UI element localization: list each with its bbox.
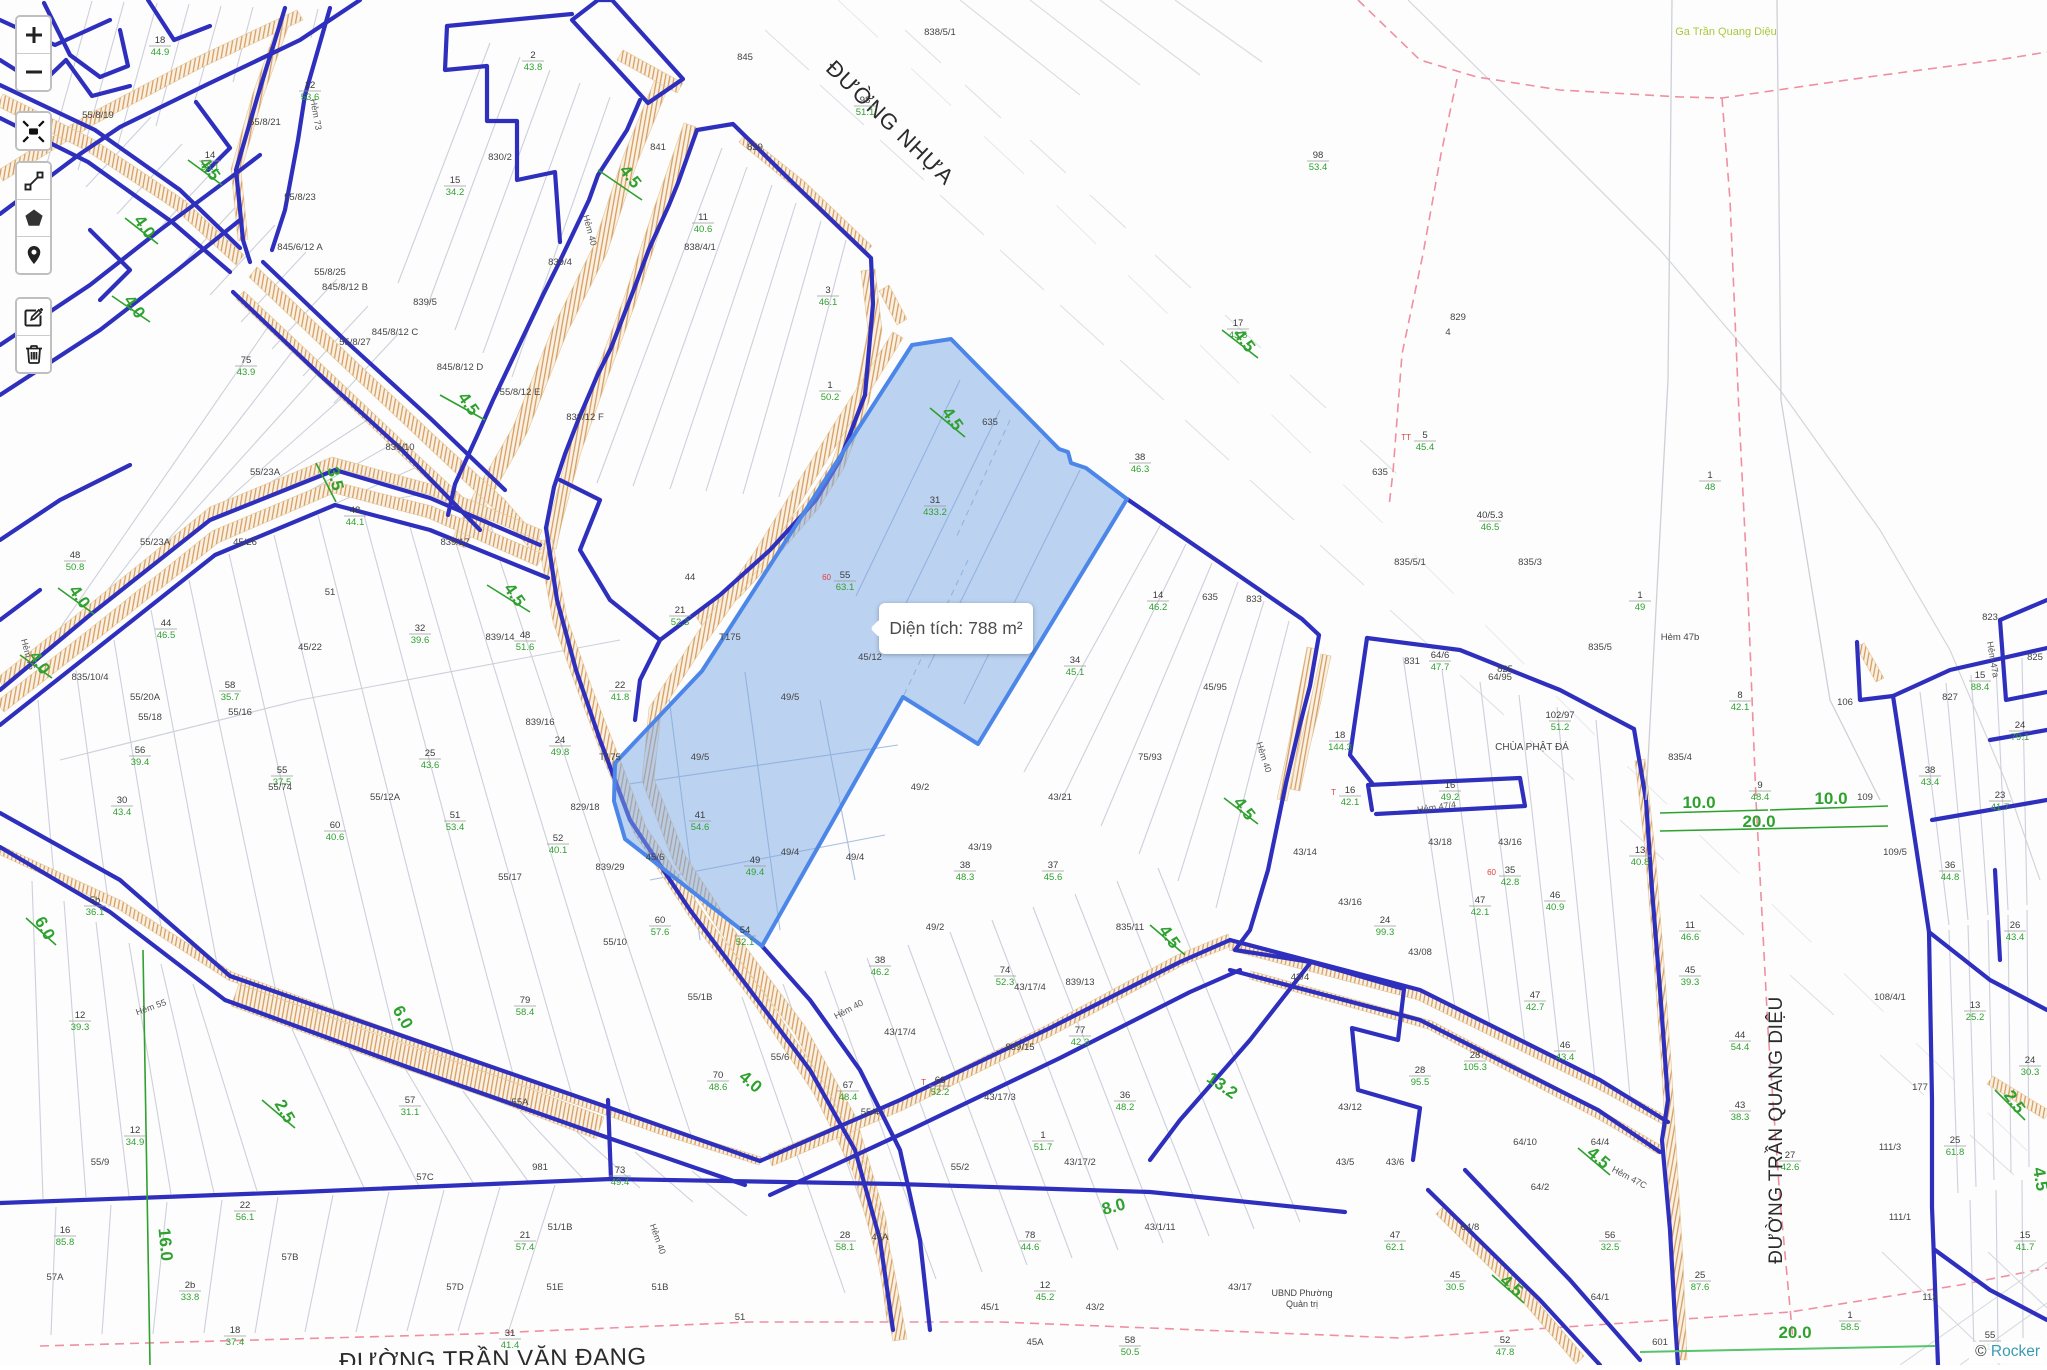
svg-text:45.6: 45.6 bbox=[1044, 872, 1063, 883]
svg-text:5: 5 bbox=[1422, 430, 1427, 441]
svg-text:11: 11 bbox=[1685, 920, 1695, 931]
svg-text:24: 24 bbox=[555, 735, 566, 746]
svg-text:47: 47 bbox=[1390, 1230, 1401, 1241]
svg-text:36: 36 bbox=[1120, 1090, 1131, 1101]
svg-text:64/2: 64/2 bbox=[1531, 1182, 1550, 1193]
svg-text:111/3: 111/3 bbox=[1879, 1142, 1901, 1153]
svg-text:1: 1 bbox=[1637, 590, 1642, 601]
svg-text:26: 26 bbox=[2010, 920, 2021, 931]
svg-text:109: 109 bbox=[1857, 792, 1873, 803]
svg-text:43.4: 43.4 bbox=[1921, 777, 1940, 788]
svg-text:43/17/2: 43/17/2 bbox=[1064, 1157, 1096, 1168]
svg-text:829/18: 829/18 bbox=[570, 802, 599, 813]
svg-text:UBND Phường: UBND Phường bbox=[1272, 1288, 1333, 1298]
svg-text:835/4: 835/4 bbox=[1668, 752, 1692, 763]
svg-text:43/18: 43/18 bbox=[1428, 837, 1452, 848]
svg-text:55/20A: 55/20A bbox=[130, 692, 161, 703]
svg-text:T: T bbox=[1331, 788, 1336, 797]
svg-text:45A: 45A bbox=[1027, 1337, 1045, 1348]
svg-text:839/16: 839/16 bbox=[525, 717, 554, 728]
svg-text:56.1: 56.1 bbox=[236, 1212, 255, 1223]
svg-text:64/4: 64/4 bbox=[1591, 1137, 1610, 1148]
svg-text:40.6: 40.6 bbox=[326, 832, 345, 843]
svg-text:77: 77 bbox=[1075, 1025, 1086, 1036]
svg-text:43.4: 43.4 bbox=[1556, 1052, 1575, 1063]
svg-text:2: 2 bbox=[530, 50, 535, 61]
svg-text:74: 74 bbox=[1000, 965, 1011, 976]
svg-text:58: 58 bbox=[1125, 1335, 1136, 1346]
svg-text:42.7: 42.7 bbox=[1526, 1002, 1545, 1013]
svg-text:43/12: 43/12 bbox=[1338, 1102, 1362, 1113]
svg-text:TT: TT bbox=[1401, 433, 1411, 442]
svg-text:Ga Trần Quang Diệu: Ga Trần Quang Diệu bbox=[1675, 26, 1777, 38]
svg-text:3: 3 bbox=[825, 285, 830, 296]
svg-text:42.3: 42.3 bbox=[1071, 1037, 1090, 1048]
svg-text:51.7: 51.7 bbox=[1034, 1142, 1053, 1153]
svg-text:46: 46 bbox=[1550, 890, 1561, 901]
svg-text:55A: 55A bbox=[512, 1097, 530, 1108]
svg-text:21: 21 bbox=[675, 605, 686, 616]
svg-text:845/6/12 A: 845/6/12 A bbox=[277, 242, 323, 253]
svg-text:43/21: 43/21 bbox=[1048, 792, 1072, 803]
svg-text:57.4: 57.4 bbox=[516, 1242, 535, 1253]
svg-text:53.4: 53.4 bbox=[1309, 162, 1328, 173]
svg-text:52.3: 52.3 bbox=[996, 977, 1015, 988]
svg-text:56: 56 bbox=[135, 745, 146, 756]
svg-text:43/1/11: 43/1/11 bbox=[1145, 1222, 1176, 1233]
svg-text:37.4: 37.4 bbox=[226, 1337, 245, 1348]
svg-text:55/17: 55/17 bbox=[498, 872, 522, 883]
svg-text:43/17: 43/17 bbox=[1228, 1282, 1252, 1293]
svg-text:64/1: 64/1 bbox=[1591, 1292, 1610, 1303]
svg-text:60: 60 bbox=[330, 820, 341, 831]
svg-text:38: 38 bbox=[960, 860, 971, 871]
svg-text:635: 635 bbox=[1202, 592, 1218, 603]
svg-text:46.2: 46.2 bbox=[1149, 602, 1168, 613]
svg-text:8: 8 bbox=[1737, 690, 1742, 701]
svg-text:31.1: 31.1 bbox=[401, 1107, 420, 1118]
svg-text:45/6: 45/6 bbox=[646, 852, 665, 863]
svg-text:58: 58 bbox=[225, 680, 236, 691]
svg-text:839/12 F: 839/12 F bbox=[566, 412, 604, 423]
svg-text:49/2: 49/2 bbox=[926, 922, 945, 933]
svg-text:40.8: 40.8 bbox=[1631, 857, 1650, 868]
svg-text:24: 24 bbox=[2015, 720, 2026, 731]
svg-text:39.3: 39.3 bbox=[71, 1022, 90, 1033]
svg-text:102/97: 102/97 bbox=[1545, 710, 1574, 721]
svg-text:49: 49 bbox=[1635, 602, 1646, 613]
svg-text:44: 44 bbox=[685, 572, 696, 583]
svg-text:41.8: 41.8 bbox=[611, 692, 630, 703]
svg-text:45/12: 45/12 bbox=[858, 652, 882, 663]
svg-text:48.4: 48.4 bbox=[1751, 792, 1770, 803]
svg-text:38.3: 38.3 bbox=[1731, 1112, 1750, 1123]
svg-text:4: 4 bbox=[1445, 327, 1450, 338]
svg-text:55: 55 bbox=[840, 570, 851, 581]
svg-text:45: 45 bbox=[1450, 1270, 1461, 1281]
svg-text:49/4: 49/4 bbox=[781, 847, 800, 858]
svg-text:51/1B: 51/1B bbox=[548, 1222, 573, 1233]
svg-text:57B: 57B bbox=[282, 1252, 299, 1263]
svg-text:45/1: 45/1 bbox=[981, 1302, 1000, 1313]
svg-text:835/10/4: 835/10/4 bbox=[72, 672, 109, 683]
svg-text:49/5: 49/5 bbox=[691, 752, 710, 763]
svg-text:48: 48 bbox=[520, 630, 531, 641]
svg-text:Quản trị: Quản trị bbox=[1286, 1299, 1318, 1309]
svg-text:838/4/1: 838/4/1 bbox=[684, 242, 716, 253]
svg-text:24: 24 bbox=[1380, 915, 1391, 926]
svg-text:49/5: 49/5 bbox=[781, 692, 800, 703]
svg-text:98: 98 bbox=[1313, 150, 1324, 161]
svg-text:433.2: 433.2 bbox=[923, 507, 947, 518]
svg-text:39.3: 39.3 bbox=[1681, 977, 1700, 988]
svg-text:41.7: 41.7 bbox=[1991, 802, 2010, 813]
svg-text:38.1: 38.1 bbox=[201, 162, 220, 173]
svg-text:44.9: 44.9 bbox=[151, 47, 170, 58]
svg-text:1: 1 bbox=[1847, 1310, 1852, 1321]
svg-text:49: 49 bbox=[750, 855, 761, 866]
svg-text:45.1: 45.1 bbox=[1066, 667, 1085, 678]
svg-text:830/2: 830/2 bbox=[488, 152, 512, 163]
svg-text:43.6: 43.6 bbox=[421, 760, 440, 771]
svg-text:24: 24 bbox=[2025, 1055, 2036, 1066]
svg-text:50.2: 50.2 bbox=[821, 392, 840, 403]
svg-text:22: 22 bbox=[615, 680, 626, 691]
svg-text:34.9: 34.9 bbox=[126, 1137, 145, 1148]
svg-text:55/8/27: 55/8/27 bbox=[339, 337, 371, 348]
svg-text:49/4: 49/4 bbox=[846, 852, 865, 863]
svg-text:144.3: 144.3 bbox=[1328, 742, 1352, 753]
svg-text:41.7: 41.7 bbox=[2016, 1242, 2035, 1253]
svg-text:16: 16 bbox=[60, 1225, 71, 1236]
svg-text:18: 18 bbox=[155, 35, 166, 46]
svg-text:CHÙA PHẬT ĐÁ: CHÙA PHẬT ĐÁ bbox=[1495, 740, 1569, 753]
svg-text:43/17/4: 43/17/4 bbox=[884, 1027, 916, 1038]
svg-text:55/23A: 55/23A bbox=[250, 467, 281, 478]
svg-text:12: 12 bbox=[130, 1125, 141, 1136]
svg-text:601: 601 bbox=[1652, 1337, 1668, 1348]
svg-text:42.8: 42.8 bbox=[1501, 877, 1520, 888]
svg-text:835/5: 835/5 bbox=[1588, 642, 1612, 653]
svg-text:28: 28 bbox=[1470, 1050, 1481, 1061]
svg-text:14: 14 bbox=[205, 150, 216, 161]
svg-text:47: 47 bbox=[1475, 895, 1486, 906]
svg-text:43.8: 43.8 bbox=[524, 62, 543, 73]
svg-text:831: 831 bbox=[1404, 656, 1420, 667]
svg-text:838/5/1: 838/5/1 bbox=[924, 27, 956, 38]
svg-text:54: 54 bbox=[740, 925, 751, 936]
svg-text:835/10: 835/10 bbox=[385, 442, 414, 453]
svg-text:57D: 57D bbox=[446, 1282, 464, 1293]
svg-text:54.4: 54.4 bbox=[1731, 1042, 1750, 1053]
svg-text:44: 44 bbox=[161, 618, 172, 629]
svg-text:1: 1 bbox=[1707, 470, 1712, 481]
svg-text:839/15: 839/15 bbox=[1005, 1042, 1034, 1053]
svg-text:635: 635 bbox=[1372, 467, 1388, 478]
svg-text:48.3: 48.3 bbox=[956, 872, 975, 883]
svg-text:43/5: 43/5 bbox=[1336, 1157, 1355, 1168]
svg-text:63.1: 63.1 bbox=[836, 582, 855, 593]
svg-text:41: 41 bbox=[695, 810, 706, 821]
svg-text:49.8: 49.8 bbox=[551, 747, 570, 758]
svg-text:15: 15 bbox=[2020, 1230, 2031, 1241]
svg-text:50.5: 50.5 bbox=[1121, 1347, 1140, 1358]
svg-text:20.0: 20.0 bbox=[1778, 1323, 1811, 1342]
svg-text:31: 31 bbox=[505, 1328, 516, 1339]
svg-text:30: 30 bbox=[117, 795, 128, 806]
svg-text:15: 15 bbox=[1975, 670, 1986, 681]
svg-text:44: 44 bbox=[1735, 1030, 1746, 1041]
svg-text:42.1: 42.1 bbox=[1471, 907, 1490, 918]
svg-text:16: 16 bbox=[1445, 780, 1456, 791]
svg-text:58.4: 58.4 bbox=[516, 1007, 535, 1018]
svg-text:50.8: 50.8 bbox=[66, 562, 85, 573]
svg-text:41.4: 41.4 bbox=[501, 1340, 520, 1351]
svg-text:10.0: 10.0 bbox=[1814, 789, 1847, 808]
svg-text:835/3: 835/3 bbox=[1518, 557, 1542, 568]
svg-text:43/6: 43/6 bbox=[1386, 1157, 1405, 1168]
svg-text:14: 14 bbox=[1153, 590, 1164, 601]
svg-text:43.5: 43.5 bbox=[1229, 330, 1248, 341]
svg-text:43.9: 43.9 bbox=[237, 367, 256, 378]
svg-text:845/8/12 D: 845/8/12 D bbox=[437, 362, 484, 373]
svg-text:108/4/1: 108/4/1 bbox=[1874, 992, 1906, 1003]
svg-text:34.2: 34.2 bbox=[446, 187, 465, 198]
svg-text:45.2: 45.2 bbox=[1036, 1292, 1055, 1303]
svg-text:55: 55 bbox=[277, 765, 288, 776]
svg-text:835/11: 835/11 bbox=[1116, 922, 1144, 933]
svg-text:12: 12 bbox=[75, 1010, 86, 1021]
svg-text:45.4: 45.4 bbox=[1416, 442, 1435, 453]
svg-text:30.3: 30.3 bbox=[2021, 1067, 2040, 1078]
svg-text:55/9: 55/9 bbox=[91, 1157, 110, 1168]
svg-text:105.3: 105.3 bbox=[1463, 1062, 1487, 1073]
svg-text:839/17: 839/17 bbox=[440, 537, 469, 548]
svg-text:47: 47 bbox=[1530, 990, 1541, 1001]
svg-text:51: 51 bbox=[735, 1312, 746, 1323]
svg-text:1: 1 bbox=[1040, 1130, 1045, 1141]
svg-text:48: 48 bbox=[350, 505, 361, 516]
svg-text:43/2: 43/2 bbox=[1086, 1302, 1105, 1313]
svg-text:44.8: 44.8 bbox=[1941, 872, 1960, 883]
svg-text:55/18: 55/18 bbox=[138, 712, 162, 723]
svg-text:22: 22 bbox=[240, 1200, 251, 1211]
svg-text:60: 60 bbox=[822, 573, 831, 582]
svg-text:42.6: 42.6 bbox=[1781, 1162, 1800, 1173]
svg-text:53.4: 53.4 bbox=[446, 822, 465, 833]
svg-text:9: 9 bbox=[1757, 780, 1762, 791]
svg-text:823: 823 bbox=[1982, 612, 1998, 623]
svg-text:49.4: 49.4 bbox=[746, 867, 765, 878]
svg-text:39.4: 39.4 bbox=[131, 757, 150, 768]
svg-text:55/8/12 E: 55/8/12 E bbox=[500, 387, 541, 398]
svg-text:35: 35 bbox=[1505, 865, 1516, 876]
svg-text:40.9: 40.9 bbox=[1546, 902, 1565, 913]
svg-text:17: 17 bbox=[1233, 318, 1244, 329]
svg-text:48.6: 48.6 bbox=[709, 1082, 728, 1093]
svg-text:73: 73 bbox=[615, 1165, 626, 1176]
svg-text:38: 38 bbox=[875, 955, 886, 966]
svg-text:839/14: 839/14 bbox=[485, 632, 514, 643]
svg-text:55/8/19: 55/8/19 bbox=[82, 110, 114, 121]
svg-text:T175: T175 bbox=[599, 752, 621, 763]
svg-text:43/08: 43/08 bbox=[1408, 947, 1432, 958]
svg-text:95.5: 95.5 bbox=[1411, 1077, 1430, 1088]
svg-text:38: 38 bbox=[1135, 452, 1146, 463]
svg-text:841: 841 bbox=[650, 142, 666, 153]
svg-text:981: 981 bbox=[532, 1162, 548, 1173]
svg-text:55/8/23: 55/8/23 bbox=[284, 192, 316, 203]
svg-text:20.0: 20.0 bbox=[1742, 812, 1775, 831]
svg-text:839/4: 839/4 bbox=[548, 257, 572, 268]
svg-text:Hẻm 47b: Hẻm 47b bbox=[1661, 632, 1700, 643]
svg-text:25: 25 bbox=[1950, 1135, 1961, 1146]
svg-text:28: 28 bbox=[1415, 1065, 1426, 1076]
svg-text:54.6: 54.6 bbox=[691, 822, 710, 833]
svg-text:45: 45 bbox=[1685, 965, 1696, 976]
svg-text:98: 98 bbox=[860, 95, 871, 106]
svg-text:51.1: 51.1 bbox=[856, 107, 875, 118]
svg-text:829: 829 bbox=[747, 142, 763, 153]
svg-text:34: 34 bbox=[1070, 655, 1081, 666]
svg-text:111/1: 111/1 bbox=[1889, 1212, 1911, 1223]
svg-text:27: 27 bbox=[1785, 1150, 1796, 1161]
svg-text:21: 21 bbox=[520, 1230, 531, 1241]
svg-text:30.5: 30.5 bbox=[1446, 1282, 1465, 1293]
svg-text:58.5: 58.5 bbox=[1841, 1322, 1860, 1333]
svg-text:55/23A: 55/23A bbox=[140, 537, 171, 548]
svg-text:57: 57 bbox=[405, 1095, 416, 1106]
svg-text:43/17/3: 43/17/3 bbox=[984, 1092, 1016, 1103]
svg-text:64/8: 64/8 bbox=[1461, 1222, 1480, 1233]
svg-text:46.5: 46.5 bbox=[1481, 522, 1500, 533]
svg-text:78: 78 bbox=[1025, 1230, 1036, 1241]
svg-text:23: 23 bbox=[1995, 790, 2006, 801]
svg-text:55/8/25: 55/8/25 bbox=[314, 267, 346, 278]
svg-text:39.6: 39.6 bbox=[411, 635, 430, 646]
svg-text:833: 833 bbox=[1246, 594, 1262, 605]
svg-text:46.1: 46.1 bbox=[819, 297, 838, 308]
svg-text:99.3: 99.3 bbox=[1376, 927, 1395, 938]
svg-text:43/16: 43/16 bbox=[1338, 897, 1362, 908]
svg-text:51: 51 bbox=[325, 587, 336, 598]
svg-text:38: 38 bbox=[1925, 765, 1936, 776]
svg-text:25.2: 25.2 bbox=[1966, 1012, 1985, 1023]
svg-text:845/8/12 B: 845/8/12 B bbox=[322, 282, 368, 293]
svg-text:40.1: 40.1 bbox=[549, 845, 568, 856]
svg-text:827: 827 bbox=[1942, 692, 1958, 703]
svg-text:43: 43 bbox=[1735, 1100, 1746, 1111]
svg-text:46.5: 46.5 bbox=[157, 630, 176, 641]
svg-text:16: 16 bbox=[1345, 785, 1356, 796]
svg-text:16.0: 16.0 bbox=[155, 1227, 177, 1262]
svg-text:47.7: 47.7 bbox=[1431, 662, 1450, 673]
svg-text:55/2: 55/2 bbox=[951, 1162, 970, 1173]
svg-text:47.8: 47.8 bbox=[1496, 1347, 1515, 1358]
svg-text:52: 52 bbox=[1500, 1335, 1511, 1346]
svg-text:18: 18 bbox=[230, 1325, 241, 1336]
svg-text:51B: 51B bbox=[652, 1282, 669, 1293]
svg-text:55: 55 bbox=[1985, 1330, 1996, 1341]
svg-text:70: 70 bbox=[713, 1070, 724, 1081]
svg-text:13: 13 bbox=[1970, 1000, 1981, 1011]
svg-text:48: 48 bbox=[70, 550, 81, 561]
svg-text:839/5: 839/5 bbox=[413, 297, 437, 308]
svg-text:28: 28 bbox=[840, 1230, 851, 1241]
svg-text:825: 825 bbox=[2027, 652, 2043, 663]
svg-text:43/17/4: 43/17/4 bbox=[1014, 982, 1046, 993]
svg-text:45/95: 45/95 bbox=[1203, 682, 1227, 693]
svg-text:1: 1 bbox=[827, 380, 832, 391]
svg-text:845/8/12 C: 845/8/12 C bbox=[372, 327, 419, 338]
svg-text:57.6: 57.6 bbox=[651, 927, 670, 938]
svg-text:825: 825 bbox=[1497, 664, 1513, 675]
svg-text:44.6: 44.6 bbox=[1021, 1242, 1040, 1253]
svg-text:839/13: 839/13 bbox=[1065, 977, 1094, 988]
svg-text:64/6: 64/6 bbox=[1431, 650, 1450, 661]
svg-text:60: 60 bbox=[1487, 868, 1496, 877]
svg-text:2b: 2b bbox=[185, 1280, 196, 1291]
svg-text:13: 13 bbox=[1635, 845, 1646, 856]
svg-text:45/26: 45/26 bbox=[233, 537, 257, 548]
svg-text:51.2: 51.2 bbox=[1551, 722, 1570, 733]
svg-text:ĐƯỜNG TRẦN QUANG DIỆU: ĐƯỜNG TRẦN QUANG DIỆU bbox=[1765, 996, 1787, 1264]
svg-text:32.5: 32.5 bbox=[1601, 1242, 1620, 1253]
svg-text:109/5: 109/5 bbox=[1883, 847, 1907, 858]
svg-text:25: 25 bbox=[1695, 1270, 1706, 1281]
svg-text:46.2: 46.2 bbox=[871, 967, 890, 978]
svg-text:79.1: 79.1 bbox=[2011, 732, 2030, 743]
svg-text:43.4: 43.4 bbox=[2006, 932, 2025, 943]
svg-text:49.4: 49.4 bbox=[611, 1177, 630, 1188]
svg-text:18: 18 bbox=[1335, 730, 1346, 741]
svg-text:43/4: 43/4 bbox=[1291, 972, 1310, 983]
svg-text:42.1: 42.1 bbox=[1341, 797, 1360, 808]
svg-text:46.3: 46.3 bbox=[1131, 464, 1150, 475]
svg-text:58.1: 58.1 bbox=[836, 1242, 855, 1253]
svg-text:87.6: 87.6 bbox=[1691, 1282, 1710, 1293]
svg-text:42.1: 42.1 bbox=[1731, 702, 1750, 713]
svg-text:36.1: 36.1 bbox=[86, 907, 105, 918]
svg-text:57C: 57C bbox=[416, 1172, 434, 1183]
svg-text:75: 75 bbox=[241, 355, 252, 366]
svg-text:55/8/21: 55/8/21 bbox=[249, 117, 281, 128]
svg-text:55/74: 55/74 bbox=[268, 782, 292, 793]
svg-text:45A: 45A bbox=[872, 1232, 890, 1243]
svg-text:33.8: 33.8 bbox=[181, 1292, 200, 1303]
svg-text:67: 67 bbox=[843, 1080, 854, 1091]
svg-text:56: 56 bbox=[1605, 1230, 1616, 1241]
svg-text:49.2: 49.2 bbox=[1441, 792, 1460, 803]
svg-text:49/2: 49/2 bbox=[911, 782, 930, 793]
svg-text:T175: T175 bbox=[719, 632, 741, 643]
svg-text:35.7: 35.7 bbox=[221, 692, 240, 703]
svg-text:79: 79 bbox=[520, 995, 531, 1006]
svg-text:66: 66 bbox=[935, 1075, 946, 1086]
svg-text:52.3: 52.3 bbox=[671, 617, 690, 628]
svg-text:43/14: 43/14 bbox=[1293, 847, 1317, 858]
svg-text:62.1: 62.1 bbox=[1386, 1242, 1405, 1253]
svg-text:52: 52 bbox=[553, 833, 564, 844]
svg-text:45/22: 45/22 bbox=[298, 642, 322, 653]
svg-text:40/5.3: 40/5.3 bbox=[1477, 510, 1503, 521]
svg-text:43/19: 43/19 bbox=[968, 842, 992, 853]
svg-text:51E: 51E bbox=[547, 1282, 564, 1293]
svg-text:635: 635 bbox=[982, 417, 998, 428]
svg-text:60: 60 bbox=[655, 915, 666, 926]
svg-text:53.6: 53.6 bbox=[301, 92, 320, 103]
svg-text:43.4: 43.4 bbox=[113, 807, 132, 818]
